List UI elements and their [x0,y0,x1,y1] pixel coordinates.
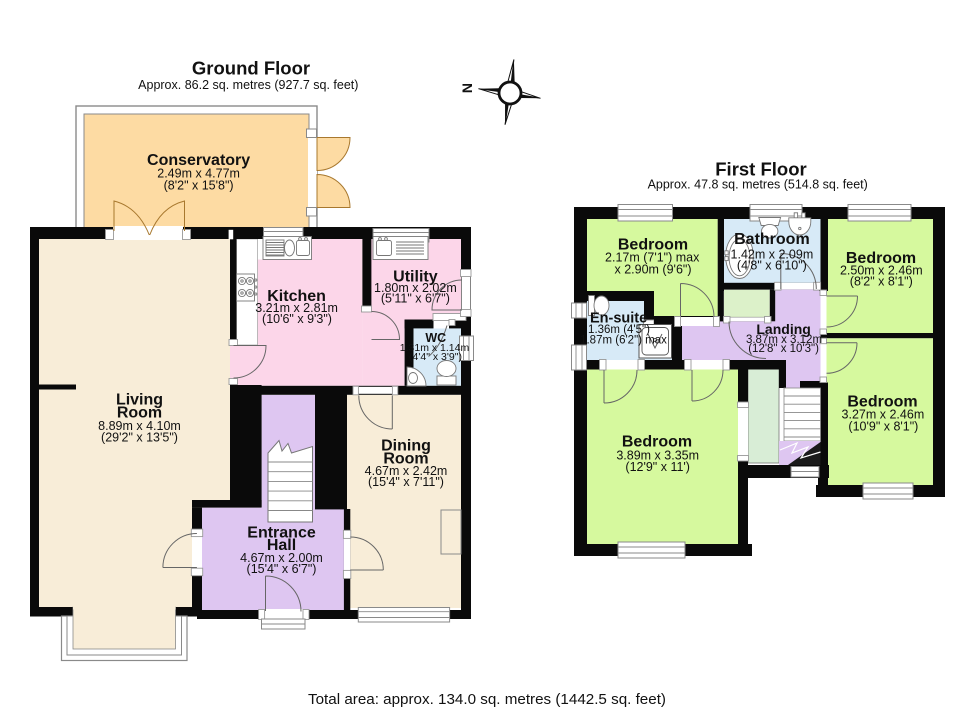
svg-text:x 2.90m (9'6"): x 2.90m (9'6") [615,262,692,276]
svg-text:(12'9" x 11'): (12'9" x 11') [625,460,690,474]
svg-text:(4'4" x 3'9"): (4'4" x 3'9") [409,351,462,363]
svg-text:N: N [459,83,475,93]
svg-text:(10'9" x 8'1"): (10'9" x 8'1") [848,419,918,433]
svg-text:(8'2" x 15'8"): (8'2" x 15'8") [164,179,234,193]
svg-text:(15'4" x 7'11"): (15'4" x 7'11") [368,475,444,489]
svg-text:(4'8" x 6'10"): (4'8" x 6'10") [737,259,807,273]
svg-text:Bathroom: Bathroom [734,231,810,248]
svg-text:1.87m (6'2") max: 1.87m (6'2") max [580,335,667,347]
svg-text:(8'2" x 8'1"): (8'2" x 8'1") [850,274,913,288]
svg-text:(10'6" x 9'3"): (10'6" x 9'3") [262,312,332,326]
svg-text:Approx. 86.2 sq. metres (927.7: Approx. 86.2 sq. metres (927.7 sq. feet) [138,78,358,92]
svg-text:Total area: approx. 134.0 sq.: Total area: approx. 134.0 sq. metres (14… [308,691,666,708]
svg-text:(5'11" x 6'7"): (5'11" x 6'7") [381,292,450,306]
svg-text:(29'2" x 13'5"): (29'2" x 13'5") [101,431,178,445]
svg-text:Approx. 47.8 sq. metres (514.8: Approx. 47.8 sq. metres (514.8 sq. feet) [648,178,868,192]
svg-text:(12'8" x 10'3"): (12'8" x 10'3") [748,343,819,355]
svg-text:Ground Floor: Ground Floor [192,58,310,79]
svg-text:(15'4" x 6'7"): (15'4" x 6'7") [247,562,317,576]
svg-text:First Floor: First Floor [715,159,806,180]
